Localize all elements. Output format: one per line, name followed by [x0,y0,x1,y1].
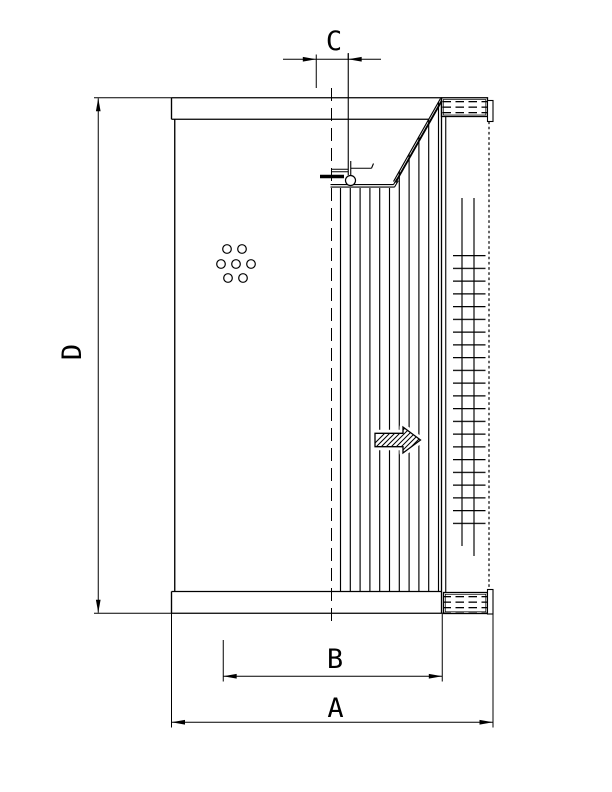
drawing-sheet: D C B A [0,0,612,792]
mesh-grid [453,255,486,525]
seal-ring-icon [346,176,356,186]
dim-label-c: C [326,26,342,57]
dim-label-a: A [327,693,343,724]
dim-label-b: B [327,644,343,675]
bottom-end-cap [444,590,494,615]
filter-element-drawing: D C B A [0,0,612,792]
dim-label-d: D [57,344,88,360]
